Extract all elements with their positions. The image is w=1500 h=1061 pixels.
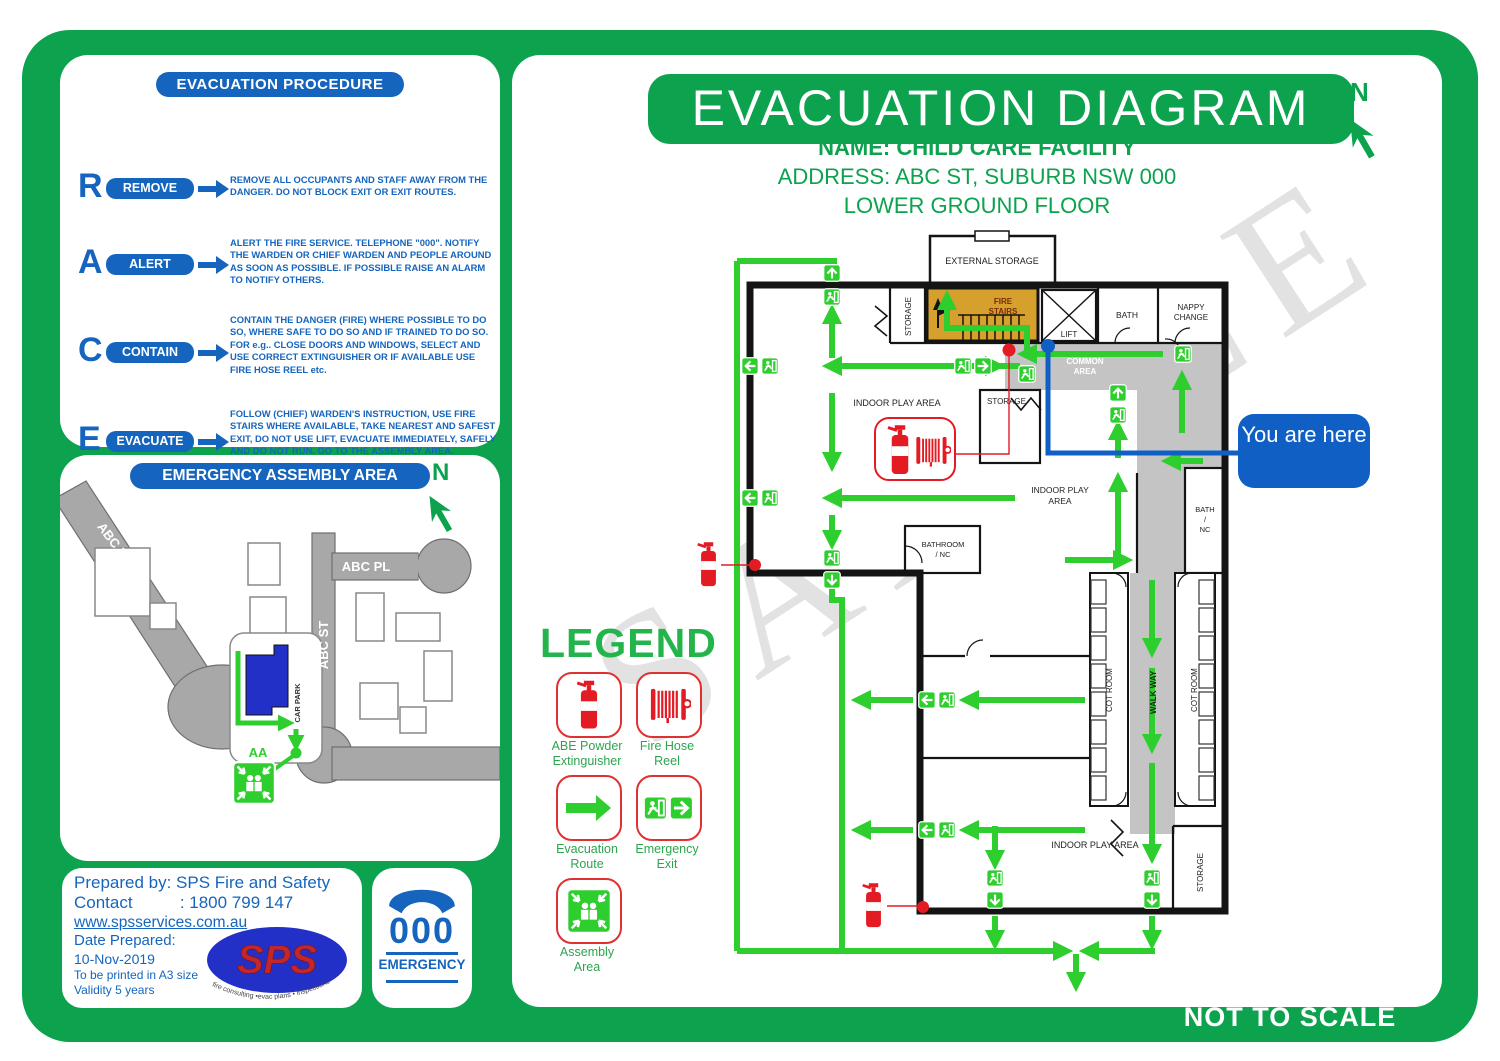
extinguisher-location-dot (1003, 344, 1016, 357)
prepared-by-panel: Prepared by: SPS Fire and Safety Contact… (62, 868, 362, 1008)
emergency-number: 000 (372, 910, 472, 952)
road-label: ABC PL (342, 559, 390, 574)
room-label: LIFT (1061, 330, 1078, 339)
room-label: INDOOR PLAY (1031, 485, 1089, 495)
room-label: / NC (936, 550, 952, 559)
date-label: Date Prepared: (74, 932, 176, 949)
assembly-route-node (291, 748, 302, 759)
legend-label: Fire HoseReel (612, 739, 722, 769)
step-letter: R (78, 167, 103, 206)
prepared-by: Prepared by: SPS Fire and Safety (74, 873, 330, 893)
arrow-right-icon (198, 344, 230, 362)
not-to-scale-label: NOT TO SCALE (1150, 1002, 1430, 1033)
emergency-exit-icon (636, 775, 702, 841)
assembly-area-icon (233, 762, 275, 804)
room-label: BATH (1116, 310, 1138, 320)
phone-handset-icon (382, 878, 462, 914)
door-notch (975, 231, 1009, 241)
legend-label: EmergencyExit (612, 842, 722, 872)
room-label: STORAGE (987, 397, 1026, 406)
room-label: EXTERNAL STORAGE (945, 256, 1039, 266)
assembly-point-label: AA (249, 745, 268, 760)
arrow-right-icon (198, 433, 230, 451)
room-label: STORAGE (904, 297, 913, 336)
north-arrow-icon (1334, 103, 1388, 173)
road-label: ABC ST (316, 621, 331, 669)
step-letter: E (78, 420, 101, 459)
legend-label: AssemblyArea (532, 945, 642, 975)
assembly-area-icon (556, 878, 622, 944)
room-label: COT ROOM (1190, 668, 1199, 712)
extinguisher-location-dot (749, 559, 761, 571)
step-pill: CONTAIN (106, 342, 194, 363)
validity-note: Validity 5 years (74, 983, 154, 997)
assembly-map: ABC PL ABC ST ABC RD CAR PARK AA (60, 455, 500, 861)
evacuation-diagram-panel: EVACUATION DIAGRAM NAME: CHILD CARE FACI… (512, 55, 1442, 1007)
room-label: CHANGE (1174, 313, 1208, 322)
step-letter: C (78, 331, 103, 370)
step-pill: ALERT (106, 254, 194, 275)
divider (386, 980, 458, 983)
assembly-area-panel: EMERGENCY ASSEMBLY AREA N (60, 455, 500, 861)
room-label: NAPPY (1177, 303, 1205, 312)
evacuation-procedure-panel: EVACUATION PROCEDURE R REMOVE REMOVE ALL… (60, 55, 500, 447)
room-label: COMMON (1066, 357, 1104, 366)
arrow-right-icon (198, 256, 230, 274)
arrow-right-icon (198, 180, 230, 198)
legend-title: LEGEND (540, 620, 717, 667)
emergency-000-panel: 000 EMERGENCY (372, 868, 472, 1008)
extinguisher-location-dot (917, 901, 929, 913)
you-are-here-box: You are here (1238, 414, 1370, 488)
room-label: NC (1200, 525, 1211, 534)
divider (386, 952, 458, 955)
abe-powder-extinguisher-icon (556, 672, 622, 738)
print-note: To be printed in A3 size (74, 968, 198, 982)
step-text: FOLLOW (CHIEF) WARDEN'S INSTRUCTION, USE… (230, 408, 498, 458)
room-label: BATHROOM (922, 540, 965, 549)
room-label: AREA (1048, 496, 1071, 506)
date-value: 10-Nov-2019 (74, 951, 155, 967)
step-text: ALERT THE FIRE SERVICE. TELEPHONE "000".… (230, 237, 498, 287)
room-label: STAIRS (989, 307, 1018, 316)
sps-logo-text: SPS (237, 938, 317, 982)
emergency-label: EMERGENCY (372, 957, 472, 972)
room-label: AREA (1074, 367, 1097, 376)
step-pill: REMOVE (106, 178, 194, 199)
diagram-title: EVACUATION DIAGRAM (648, 74, 1354, 144)
room-label: BATH (1195, 505, 1214, 514)
room-label: WALK WAY (1149, 670, 1158, 714)
room-label: INDOOR PLAY AREA (1051, 840, 1138, 850)
abe-powder-extinguisher-icon (698, 542, 716, 586)
step-letter: A (78, 243, 103, 282)
contact: Contact : 1800 799 147 (74, 893, 293, 913)
room-label: COT ROOM (1105, 668, 1114, 712)
step-text: CONTAIN THE DANGER (FIRE) WHERE POSSIBLE… (230, 314, 498, 376)
fire-hose-reel-icon (636, 672, 702, 738)
subject-building (246, 645, 288, 715)
car-park-label: CAR PARK (293, 683, 302, 723)
evacuation-route-icon (556, 775, 622, 841)
you-are-here-dot (1041, 339, 1055, 353)
step-text: REMOVE ALL OCCUPANTS AND STAFF AWAY FROM… (230, 174, 498, 199)
room-label: FIRE (994, 297, 1013, 306)
sps-logo: SPS fire consulting •evac plans • inspec… (202, 923, 357, 1007)
step-pill: EVACUATE (106, 431, 194, 452)
room-label: INDOOR PLAY AREA (853, 398, 940, 408)
procedure-title: EVACUATION PROCEDURE (156, 72, 404, 97)
abe-powder-extinguisher-icon (863, 883, 881, 927)
room-label: STORAGE (1196, 853, 1205, 892)
floor-plan: EXTERNAL STORAGE STORAGE FIRE STAIRS LIF… (675, 228, 1375, 998)
